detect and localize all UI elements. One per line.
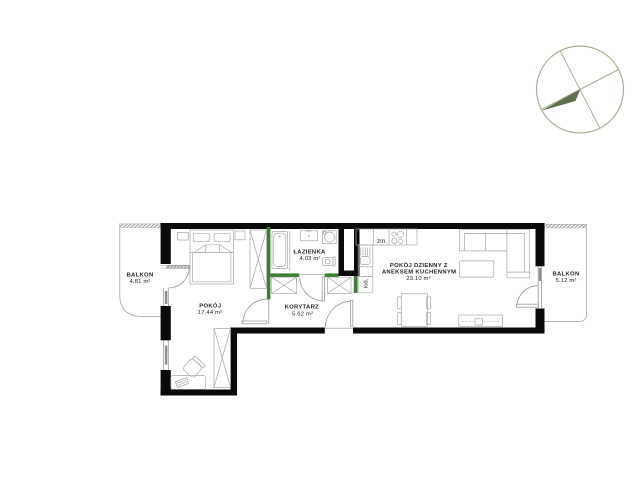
svg-text:BALKON: BALKON (127, 272, 154, 278)
svg-text:ANEKSEM KUCHENNYM: ANEKSEM KUCHENNYM (382, 269, 456, 275)
svg-text:POKÓJ DZIENNY Z: POKÓJ DZIENNY Z (390, 261, 448, 269)
svg-text:5.62 m²: 5.62 m² (292, 312, 313, 318)
svg-text:POKÓJ: POKÓJ (199, 302, 221, 310)
svg-text:23.10 m²: 23.10 m² (406, 276, 430, 282)
svg-text:ŁAZIENKA: ŁAZIENKA (293, 249, 326, 255)
svg-text:BALKON: BALKON (553, 271, 580, 277)
svg-text:17.44 m²: 17.44 m² (198, 310, 222, 316)
svg-text:lod.: lod. (364, 278, 370, 288)
svg-text:4.03 m²: 4.03 m² (299, 256, 320, 262)
svg-text:zm.: zm. (377, 238, 387, 245)
svg-text:4.81 m²: 4.81 m² (129, 279, 150, 285)
svg-text:5.12 m²: 5.12 m² (555, 278, 576, 284)
svg-text:KORYTARZ: KORYTARZ (285, 305, 320, 311)
